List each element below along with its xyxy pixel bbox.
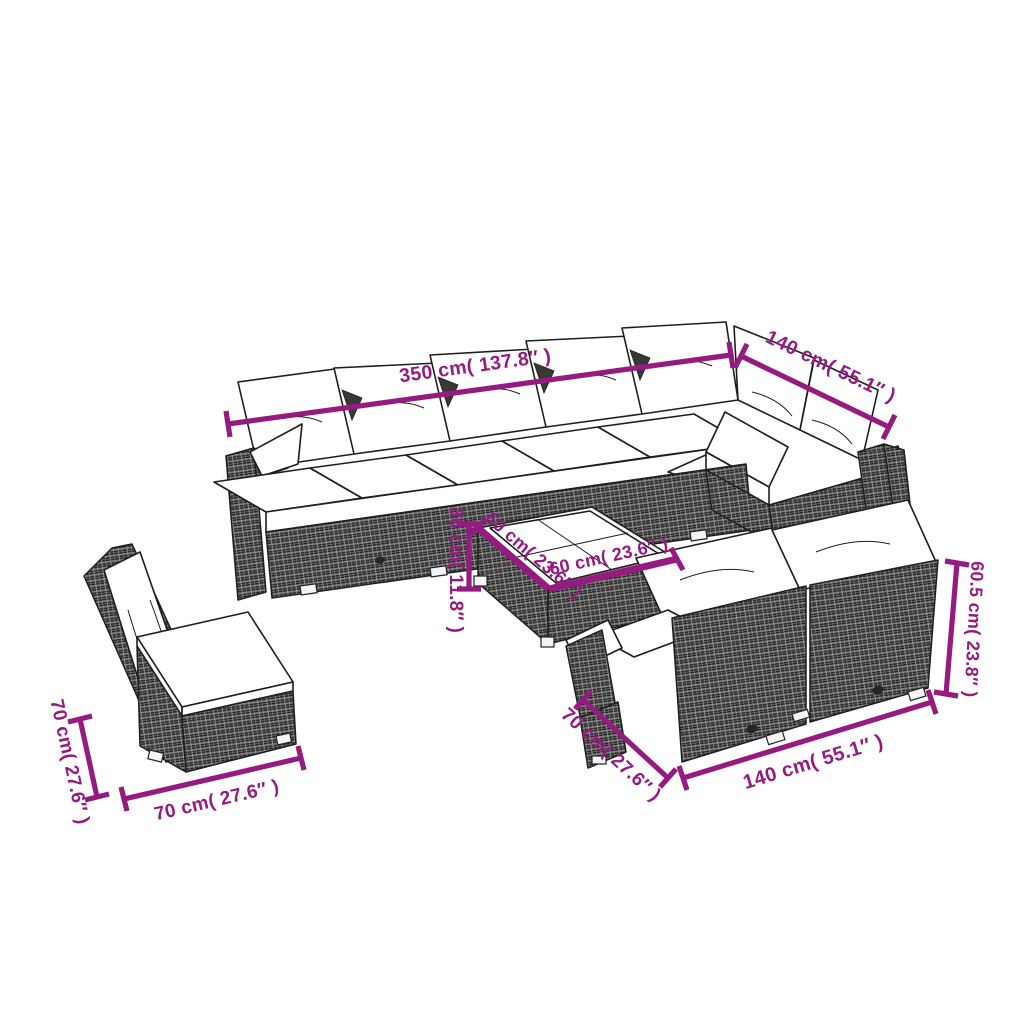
dim-loveseat-height: 60.5 cm( 23.8″ ) [934, 561, 988, 698]
sofa-foot [430, 566, 447, 577]
sofa-foot [690, 530, 707, 541]
dim-table-height-label: 30 cm( 11.8″ ) [445, 507, 466, 633]
dim-chair-height: 70 cm( 27.6″ ) [46, 697, 109, 826]
furniture-set-illustration: 350 cm( 137.8″ ) 140 cm( 55.1″ ) 30 cm( … [0, 0, 1024, 1024]
table-foot [541, 637, 554, 647]
product-dimension-figure: 350 cm( 137.8″ ) 140 cm( 55.1″ ) 30 cm( … [0, 0, 1024, 1024]
dim-loveseat-height-label: 60.5 cm( 23.8″ ) [960, 561, 987, 698]
dim-chair-width-label: 70 cm( 27.6″ ) [152, 776, 281, 825]
table-foot [474, 576, 487, 586]
sofa-foot [300, 584, 317, 595]
